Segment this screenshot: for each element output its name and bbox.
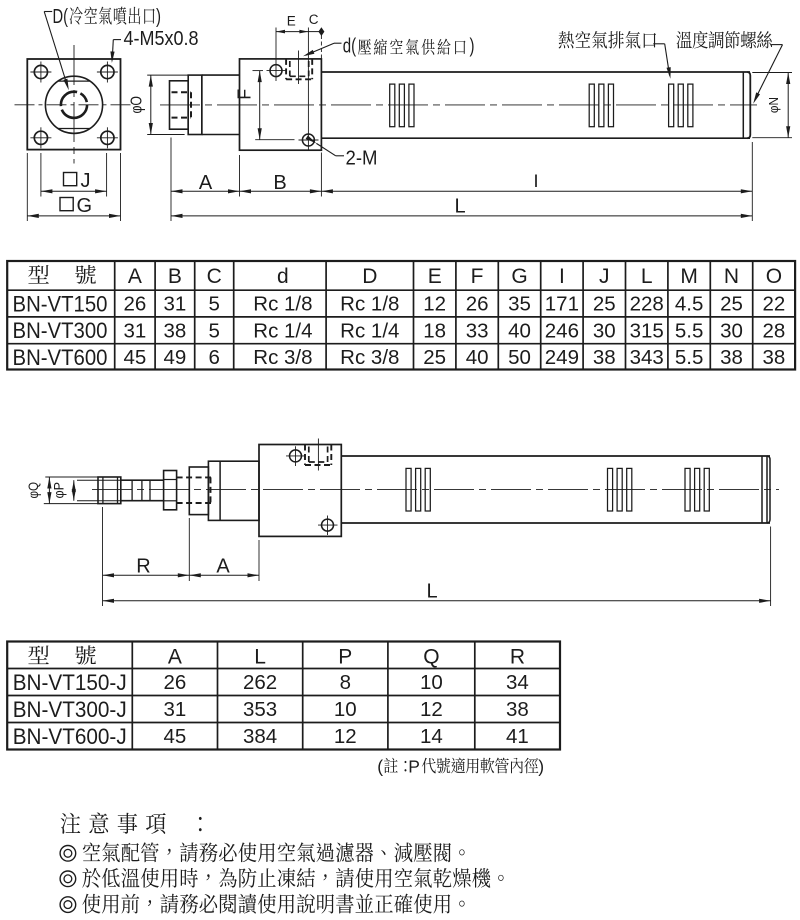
svg-text:BN-VT150-J: BN-VT150-J: [13, 670, 127, 695]
svg-text:38: 38: [762, 346, 785, 369]
svg-text:BN-VT300: BN-VT300: [13, 318, 108, 343]
svg-text:35: 35: [508, 293, 531, 316]
svg-text:38: 38: [593, 346, 616, 369]
svg-text:171: 171: [545, 293, 579, 316]
svg-text:G: G: [77, 195, 93, 217]
svg-text:): ): [538, 757, 544, 777]
svg-text:26: 26: [123, 293, 146, 316]
svg-text:12: 12: [420, 698, 443, 721]
svg-text:F: F: [235, 89, 255, 100]
svg-text:φO: φO: [129, 96, 146, 114]
svg-text:Rc 1/8: Rc 1/8: [253, 293, 312, 316]
svg-text:J: J: [599, 265, 610, 288]
svg-text:A: A: [216, 556, 230, 578]
svg-text:R: R: [136, 556, 150, 578]
svg-text:φN: φN: [766, 97, 781, 113]
svg-text:49: 49: [163, 346, 186, 369]
svg-text:40: 40: [508, 319, 531, 342]
svg-text:Rc 1/8: Rc 1/8: [340, 293, 399, 316]
svg-text:G: G: [511, 265, 527, 288]
svg-text:C: C: [207, 265, 222, 288]
svg-text:31: 31: [163, 698, 186, 721]
svg-text:34: 34: [506, 671, 529, 694]
svg-text:L: L: [426, 581, 437, 603]
svg-text:): ): [470, 36, 475, 58]
svg-text:): ): [156, 6, 161, 28]
svg-text:A: A: [168, 645, 182, 668]
svg-text:8: 8: [340, 671, 351, 694]
svg-text:4.5: 4.5: [675, 293, 704, 316]
svg-text:F: F: [471, 265, 484, 288]
svg-text:228: 228: [630, 293, 664, 316]
svg-text:6: 6: [208, 346, 219, 369]
svg-text:BN-VT600: BN-VT600: [13, 345, 108, 370]
svg-text:353: 353: [243, 698, 277, 721]
svg-text:10: 10: [334, 698, 357, 721]
svg-text:26: 26: [466, 293, 489, 316]
svg-text:P: P: [338, 645, 352, 668]
svg-text:E: E: [428, 265, 442, 288]
svg-text:Rc 1/4: Rc 1/4: [253, 319, 312, 342]
svg-text:BN-VT300-J: BN-VT300-J: [13, 697, 127, 722]
svg-text:B: B: [273, 172, 286, 194]
svg-text:262: 262: [243, 671, 277, 694]
svg-text:4-M5x0.8: 4-M5x0.8: [124, 28, 199, 50]
svg-text:L: L: [254, 645, 266, 668]
svg-text:249: 249: [545, 346, 579, 369]
svg-text:384: 384: [243, 725, 277, 748]
svg-text:22: 22: [762, 293, 785, 316]
svg-text:D: D: [362, 265, 377, 288]
svg-text:10: 10: [420, 671, 443, 694]
svg-text:A: A: [199, 172, 213, 194]
svg-text:31: 31: [123, 319, 146, 342]
svg-text:26: 26: [163, 671, 186, 694]
svg-text:N: N: [724, 265, 739, 288]
svg-text:J: J: [81, 170, 91, 192]
svg-text:5.5: 5.5: [675, 346, 704, 369]
svg-text:φQ: φQ: [25, 482, 41, 499]
svg-text:d(: d(: [343, 36, 357, 58]
svg-text:φP: φP: [50, 482, 66, 499]
svg-text:18: 18: [423, 319, 446, 342]
svg-text:A: A: [128, 265, 142, 288]
svg-text:31: 31: [163, 293, 186, 316]
svg-text:Rc 1/4: Rc 1/4: [340, 319, 399, 342]
svg-text:Rc 3/8: Rc 3/8: [340, 346, 399, 369]
svg-text:P: P: [408, 757, 420, 777]
svg-text:12: 12: [423, 293, 446, 316]
svg-text:B: B: [168, 265, 182, 288]
svg-text:343: 343: [630, 346, 664, 369]
svg-text:25: 25: [593, 293, 616, 316]
svg-text:E: E: [287, 14, 296, 29]
svg-text:I: I: [559, 265, 565, 288]
svg-text:L: L: [454, 196, 465, 218]
svg-text:30: 30: [593, 319, 616, 342]
svg-text:41: 41: [506, 725, 529, 748]
svg-text:25: 25: [720, 293, 743, 316]
svg-text:315: 315: [630, 319, 664, 342]
svg-text:33: 33: [466, 319, 489, 342]
svg-text:d: d: [277, 265, 289, 288]
svg-text:O: O: [766, 265, 782, 288]
svg-text:45: 45: [123, 346, 146, 369]
svg-text:5: 5: [208, 319, 219, 342]
svg-text:C: C: [309, 12, 319, 27]
svg-text:(: (: [377, 757, 383, 777]
svg-text:R: R: [510, 645, 525, 668]
svg-text:5.5: 5.5: [675, 319, 704, 342]
svg-text:40: 40: [466, 346, 489, 369]
svg-text:5: 5: [208, 293, 219, 316]
svg-text:25: 25: [423, 346, 446, 369]
svg-text:38: 38: [720, 346, 743, 369]
svg-text:Rc 3/8: Rc 3/8: [253, 346, 312, 369]
svg-text:BN-VT150: BN-VT150: [13, 292, 108, 317]
svg-text:45: 45: [163, 725, 186, 748]
svg-text:12: 12: [334, 725, 357, 748]
svg-text:BN-VT600-J: BN-VT600-J: [13, 724, 127, 749]
svg-text:50: 50: [508, 346, 531, 369]
svg-text:L: L: [641, 265, 653, 288]
svg-text:28: 28: [762, 319, 785, 342]
svg-text:38: 38: [163, 319, 186, 342]
svg-text:Q: Q: [423, 645, 439, 668]
svg-text:D(: D(: [53, 6, 69, 28]
svg-text:30: 30: [720, 319, 743, 342]
svg-text:2-M: 2-M: [346, 148, 378, 170]
svg-text:M: M: [680, 265, 698, 288]
svg-text:246: 246: [545, 319, 579, 342]
svg-text:38: 38: [506, 698, 529, 721]
svg-text:14: 14: [420, 725, 443, 748]
